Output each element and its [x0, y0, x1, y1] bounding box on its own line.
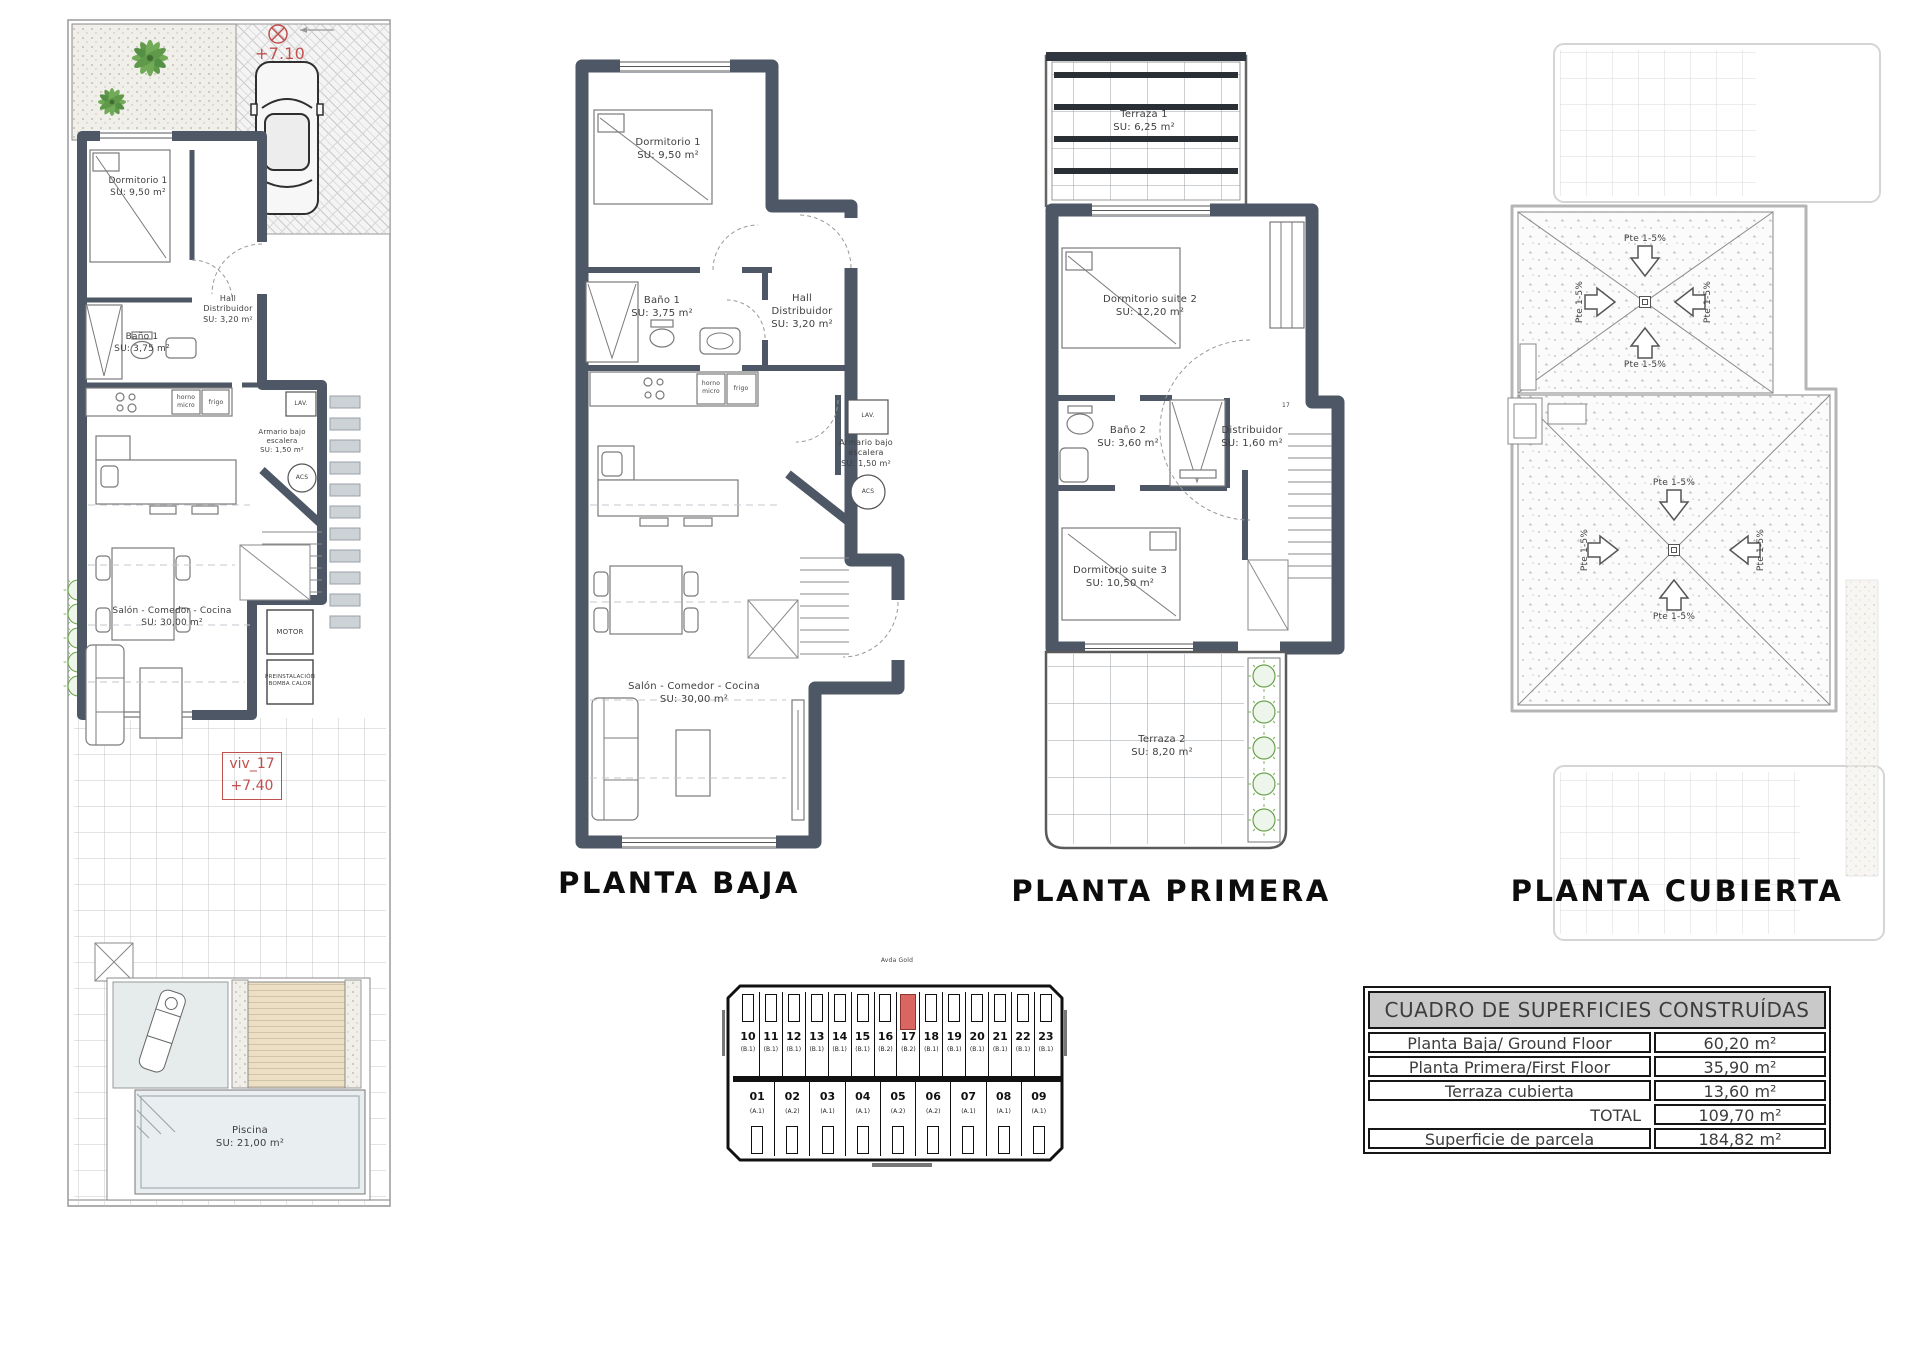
unit-number: 06 [916, 1090, 950, 1103]
unit-shape [742, 994, 754, 1022]
street-level-marker: +7.10 [255, 44, 305, 65]
room-label-dormitorio1: Dormitorio 1SU: 9,50 m² [635, 136, 700, 162]
table-row: Terraza cubierta 13,60 m² [1368, 1080, 1826, 1101]
unit-shape [900, 994, 916, 1030]
unit-type: (B.1) [1012, 1046, 1034, 1053]
unit-type: (A.1) [846, 1108, 880, 1115]
appliance-lav-site: LAV. [294, 400, 307, 408]
unit-number: 12 [783, 1030, 805, 1043]
key-plan-row-bottom: 01(A.1)02(A.2)03(A.1)04(A.1)05(A.2)06(A.… [740, 1082, 1056, 1156]
key-unit-07: 07(A.1) [950, 1082, 985, 1156]
key-unit-01: 01(A.1) [740, 1082, 774, 1156]
unit-type: (B.1) [989, 1046, 1011, 1053]
unit-type: (B.1) [783, 1046, 805, 1053]
unit-number: 23 [1035, 1030, 1057, 1043]
unit-shape [1033, 1126, 1045, 1154]
unit-number: 07 [951, 1090, 985, 1103]
unit-shape [925, 994, 937, 1022]
row-label: Planta Primera/First Floor [1368, 1056, 1651, 1077]
roof-slope-label: Pte 1-5% [1624, 360, 1666, 372]
unit-number: 02 [775, 1090, 809, 1103]
unit-type: (A.2) [881, 1108, 915, 1115]
unit-number: 13 [806, 1030, 828, 1043]
unit-shape [892, 1126, 904, 1154]
room-label-distribuidor: DistribuidorSU: 1,60 m² [1221, 424, 1283, 450]
key-unit-03: 03(A.1) [809, 1082, 844, 1156]
roof-slope-label: Pte 1-5% [1653, 612, 1695, 624]
appliance-horno: hornomicro [702, 380, 720, 396]
unit-type: (B.2) [875, 1046, 897, 1053]
unit-type: (B.1) [943, 1046, 965, 1053]
unit-number: 04 [846, 1090, 880, 1103]
unit-shape [948, 994, 960, 1022]
key-unit-13: 13(B.1) [805, 992, 828, 1076]
unit-type: (A.1) [1022, 1108, 1056, 1115]
unit-shape [751, 1126, 763, 1154]
unit-number: 19 [943, 1030, 965, 1043]
row-value: 35,90 m² [1654, 1056, 1826, 1077]
unit-shape [857, 1126, 869, 1154]
unit-type: (A.1) [987, 1108, 1021, 1115]
key-unit-18: 18(B.1) [919, 992, 942, 1076]
plan-title-planta-cubierta: PLANTA CUBIERTA [1511, 874, 1844, 908]
unit-shape [879, 994, 891, 1022]
key-unit-09: 09(A.1) [1021, 1082, 1056, 1156]
roof-slope-label: Pte 1-5% [1575, 281, 1587, 323]
unit-number: 20 [966, 1030, 988, 1043]
table-row: Planta Primera/First Floor 35,90 m² [1368, 1056, 1826, 1077]
planta-cubierta-drawing [1508, 44, 1884, 940]
appliance-acs-site: ACS [296, 474, 309, 482]
unit-number: 03 [810, 1090, 844, 1103]
street-label-top: Avda Gold [881, 957, 913, 965]
unit-type: (B.1) [966, 1046, 988, 1053]
key-unit-21: 21(B.1) [988, 992, 1011, 1076]
unit-shape [971, 994, 983, 1022]
key-unit-04: 04(A.1) [845, 1082, 880, 1156]
appliance-lav: LAV. [861, 412, 874, 420]
row-value: 13,60 m² [1654, 1080, 1826, 1101]
unit-shape [998, 1126, 1010, 1154]
unit-number: 16 [875, 1030, 897, 1043]
key-unit-08: 08(A.1) [986, 1082, 1021, 1156]
row-label: Planta Baja/ Ground Floor [1368, 1032, 1651, 1053]
room-label-bano1: Baño 1SU: 3,75 m² [631, 294, 693, 320]
room-label-suite3: Dormitorio suite 3SU: 10,50 m² [1073, 564, 1167, 590]
areas-table: CUADRO DE SUPERFICIES CONSTRUÍDAS Planta… [1363, 986, 1831, 1154]
appliance-frigo-site: frigo [209, 399, 224, 407]
unit-type: (B.1) [1035, 1046, 1057, 1053]
unit-shape [1017, 994, 1029, 1022]
unit-type: (B.2) [897, 1046, 919, 1053]
unit-type: (A.1) [740, 1108, 774, 1115]
unit-shape [811, 994, 823, 1022]
key-unit-06: 06(A.2) [915, 1082, 950, 1156]
equipment-motor: MOTOR [276, 628, 303, 637]
room-label-suite2: Dormitorio suite 2SU: 12,20 m² [1103, 293, 1197, 319]
unit-type: (B.1) [806, 1046, 828, 1053]
unit-number: 22 [1012, 1030, 1034, 1043]
unit-type: (B.1) [920, 1046, 942, 1053]
plan-title-planta-baja: PLANTA BAJA [558, 866, 800, 900]
room-label-piscina: PiscinaSU: 21,00 m² [216, 1124, 284, 1150]
plan-title-planta-primera: PLANTA PRIMERA [1011, 874, 1330, 908]
unit-shape [834, 994, 846, 1022]
room-label-salon: Salón - Comedor - CocinaSU: 30,00 m² [628, 680, 760, 706]
room-label-bano1-site: Baño 1SU: 3,75 m² [114, 332, 170, 355]
row-value: 184,82 m² [1654, 1128, 1826, 1149]
table-row-total: TOTAL 109,70 m² [1368, 1104, 1826, 1125]
row-value: 109,70 m² [1654, 1104, 1826, 1125]
appliance-acs: ACS [862, 488, 875, 496]
room-label-terraza2: Terraza 2SU: 8,20 m² [1131, 733, 1193, 759]
room-label-terraza1: Terraza 1SU: 6,25 m² [1113, 108, 1175, 134]
unit-type: (B.1) [737, 1046, 759, 1053]
key-unit-19: 19(B.1) [942, 992, 965, 1076]
unit-type: (B.1) [760, 1046, 782, 1053]
key-unit-17: 17(B.2) [896, 992, 919, 1076]
table-row: Superficie de parcela 184,82 m² [1368, 1128, 1826, 1149]
room-label-hall: HallDistribuidorSU: 3,20 m² [771, 292, 833, 331]
room-label-armario: Armario bajoescaleraSU: 1,50 m² [839, 438, 893, 469]
row-label: TOTAL [1368, 1104, 1651, 1125]
unit-number: 09 [1022, 1090, 1056, 1103]
roof-slope-label: Pte 1-5% [1703, 281, 1715, 323]
key-unit-14: 14(B.1) [828, 992, 851, 1076]
unit-number: 14 [829, 1030, 851, 1043]
planta-primera-drawing [1046, 52, 1338, 848]
unit-number: 17 [897, 1030, 919, 1043]
unit-shape [788, 994, 800, 1022]
unit-shape [994, 994, 1006, 1022]
equipment-heat-pump: PREINSTALACIÓNBOMBA CALOR [265, 674, 315, 688]
key-unit-11: 11(B.1) [759, 992, 782, 1076]
key-unit-15: 15(B.1) [851, 992, 874, 1076]
unit-number: 05 [881, 1090, 915, 1103]
appliance-frigo: frigo [734, 385, 749, 393]
room-label-salon-site: Salón - Comedor - CocinaSU: 30,00 m² [112, 606, 231, 629]
key-unit-10: 10(B.1) [737, 992, 759, 1076]
unit-shape [962, 1126, 974, 1154]
roof-slope-label: Pte 1-5% [1580, 529, 1592, 571]
unit-number: 21 [989, 1030, 1011, 1043]
unit-type: (B.1) [852, 1046, 874, 1053]
unit-shape [786, 1126, 798, 1154]
unit-number: 11 [760, 1030, 782, 1043]
room-label-hall-site: HallDistribuidorSU: 3,20 m² [203, 294, 253, 325]
unit-number: 10 [737, 1030, 759, 1043]
key-unit-20: 20(B.1) [965, 992, 988, 1076]
key-plan-row-top: 10(B.1)11(B.1)12(B.1)13(B.1)14(B.1)15(B.… [737, 992, 1057, 1076]
roof-slope-label: Pte 1-5% [1756, 529, 1768, 571]
unit-shape [822, 1126, 834, 1154]
unit-number: 01 [740, 1090, 774, 1103]
unit-number: 18 [920, 1030, 942, 1043]
drawing-sheet: +7.10 Dormitorio 1SU: 9,50 m² Baño 1SU: … [0, 0, 1920, 1356]
row-value: 60,20 m² [1654, 1032, 1826, 1053]
street-label-bottom [872, 1163, 932, 1167]
unit-shape [765, 994, 777, 1022]
room-label-armario-site: Armario bajoescaleraSU: 1,50 m² [258, 428, 305, 455]
unit-reference-box: viv_17+7.40 [222, 752, 282, 800]
unit-number: 15 [852, 1030, 874, 1043]
unit-shape [857, 994, 869, 1022]
unit-type: (A.1) [951, 1108, 985, 1115]
areas-table-title: CUADRO DE SUPERFICIES CONSTRUÍDAS [1368, 991, 1826, 1029]
key-unit-05: 05(A.2) [880, 1082, 915, 1156]
unit-type: (B.1) [829, 1046, 851, 1053]
room-label-dormitorio1-site: Dormitorio 1SU: 9,50 m² [109, 176, 168, 199]
appliance-horno-site: hornomicro [177, 394, 195, 410]
unit-type: (A.2) [916, 1108, 950, 1115]
street-label-right [1064, 1010, 1067, 1056]
unit-shape [927, 1126, 939, 1154]
stair-number-ref: 17 [1282, 402, 1290, 410]
room-label-bano2: Baño 2SU: 3,60 m² [1097, 424, 1159, 450]
unit-type: (A.1) [810, 1108, 844, 1115]
table-row: Planta Baja/ Ground Floor 60,20 m² [1368, 1032, 1826, 1053]
row-label: Superficie de parcela [1368, 1128, 1651, 1149]
unit-shape [1040, 994, 1052, 1022]
roof-slope-label: Pte 1-5% [1653, 478, 1695, 490]
unit-type: (A.2) [775, 1108, 809, 1115]
row-label: Terraza cubierta [1368, 1080, 1651, 1101]
key-unit-02: 02(A.2) [774, 1082, 809, 1156]
key-unit-23: 23(B.1) [1034, 992, 1057, 1076]
key-unit-16: 16(B.2) [874, 992, 897, 1076]
street-label-left [722, 1010, 725, 1056]
roof-slope-label: Pte 1-5% [1624, 234, 1666, 246]
unit-number: 08 [987, 1090, 1021, 1103]
key-unit-12: 12(B.1) [782, 992, 805, 1076]
key-unit-22: 22(B.1) [1011, 992, 1034, 1076]
